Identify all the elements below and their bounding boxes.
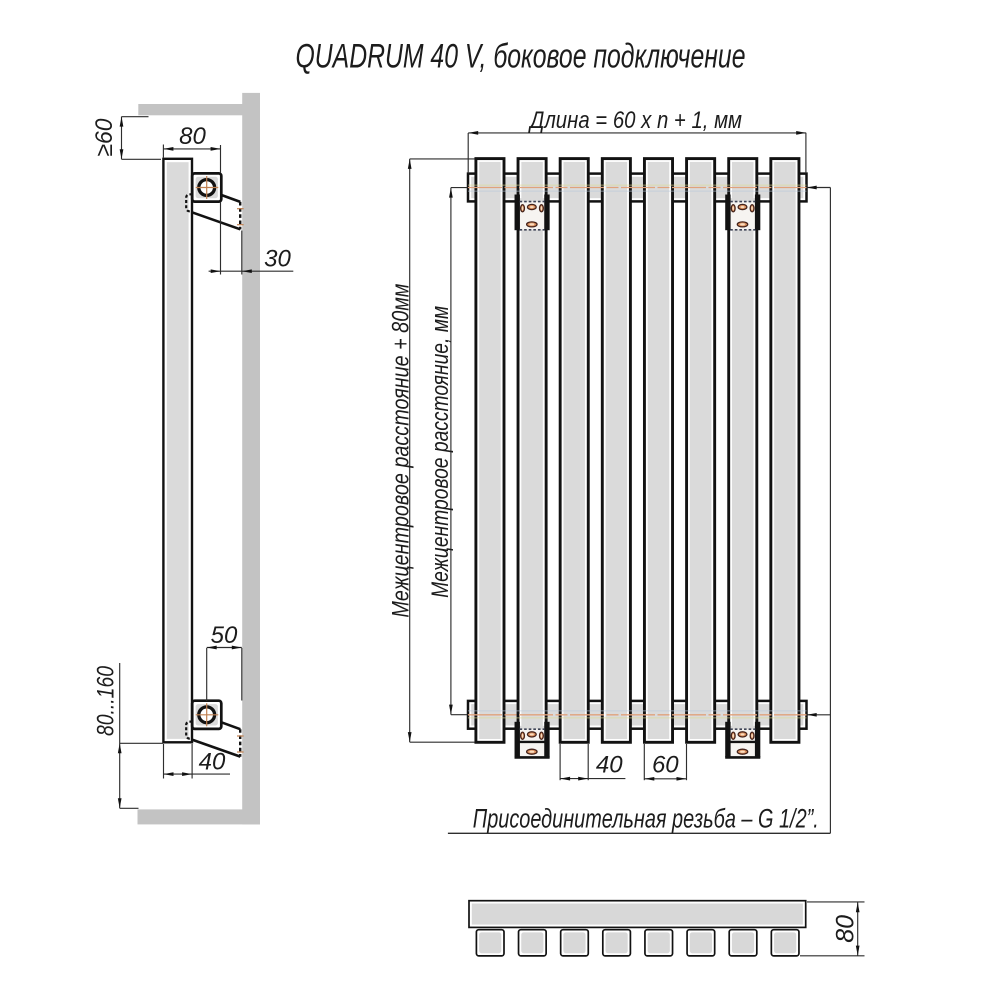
svg-text:Межцентровое расстояние, мм: Межцентровое расстояние, мм (427, 306, 454, 598)
svg-text:80: 80 (832, 915, 860, 943)
svg-text:60: 60 (652, 751, 679, 778)
svg-text:40: 40 (199, 749, 226, 776)
svg-text:50: 50 (211, 622, 238, 649)
svg-text:80...160: 80...160 (92, 665, 119, 736)
svg-text:Межцентровое расстояние + 80мм: Межцентровое расстояние + 80мм (387, 284, 414, 618)
svg-text:≥60: ≥60 (91, 118, 118, 157)
svg-text:QUADRUM 40 V, боковое подключе: QUADRUM 40 V, боковое подключение (296, 38, 746, 76)
svg-text:Длина = 60 x n + 1, мм: Длина = 60 x n + 1, мм (527, 107, 742, 134)
svg-text:40: 40 (596, 751, 623, 778)
svg-text:80: 80 (179, 123, 206, 150)
svg-text:30: 30 (264, 245, 291, 272)
svg-text:Присоединительная резьба – G 1: Присоединительная резьба – G 1/2”. (473, 803, 819, 833)
